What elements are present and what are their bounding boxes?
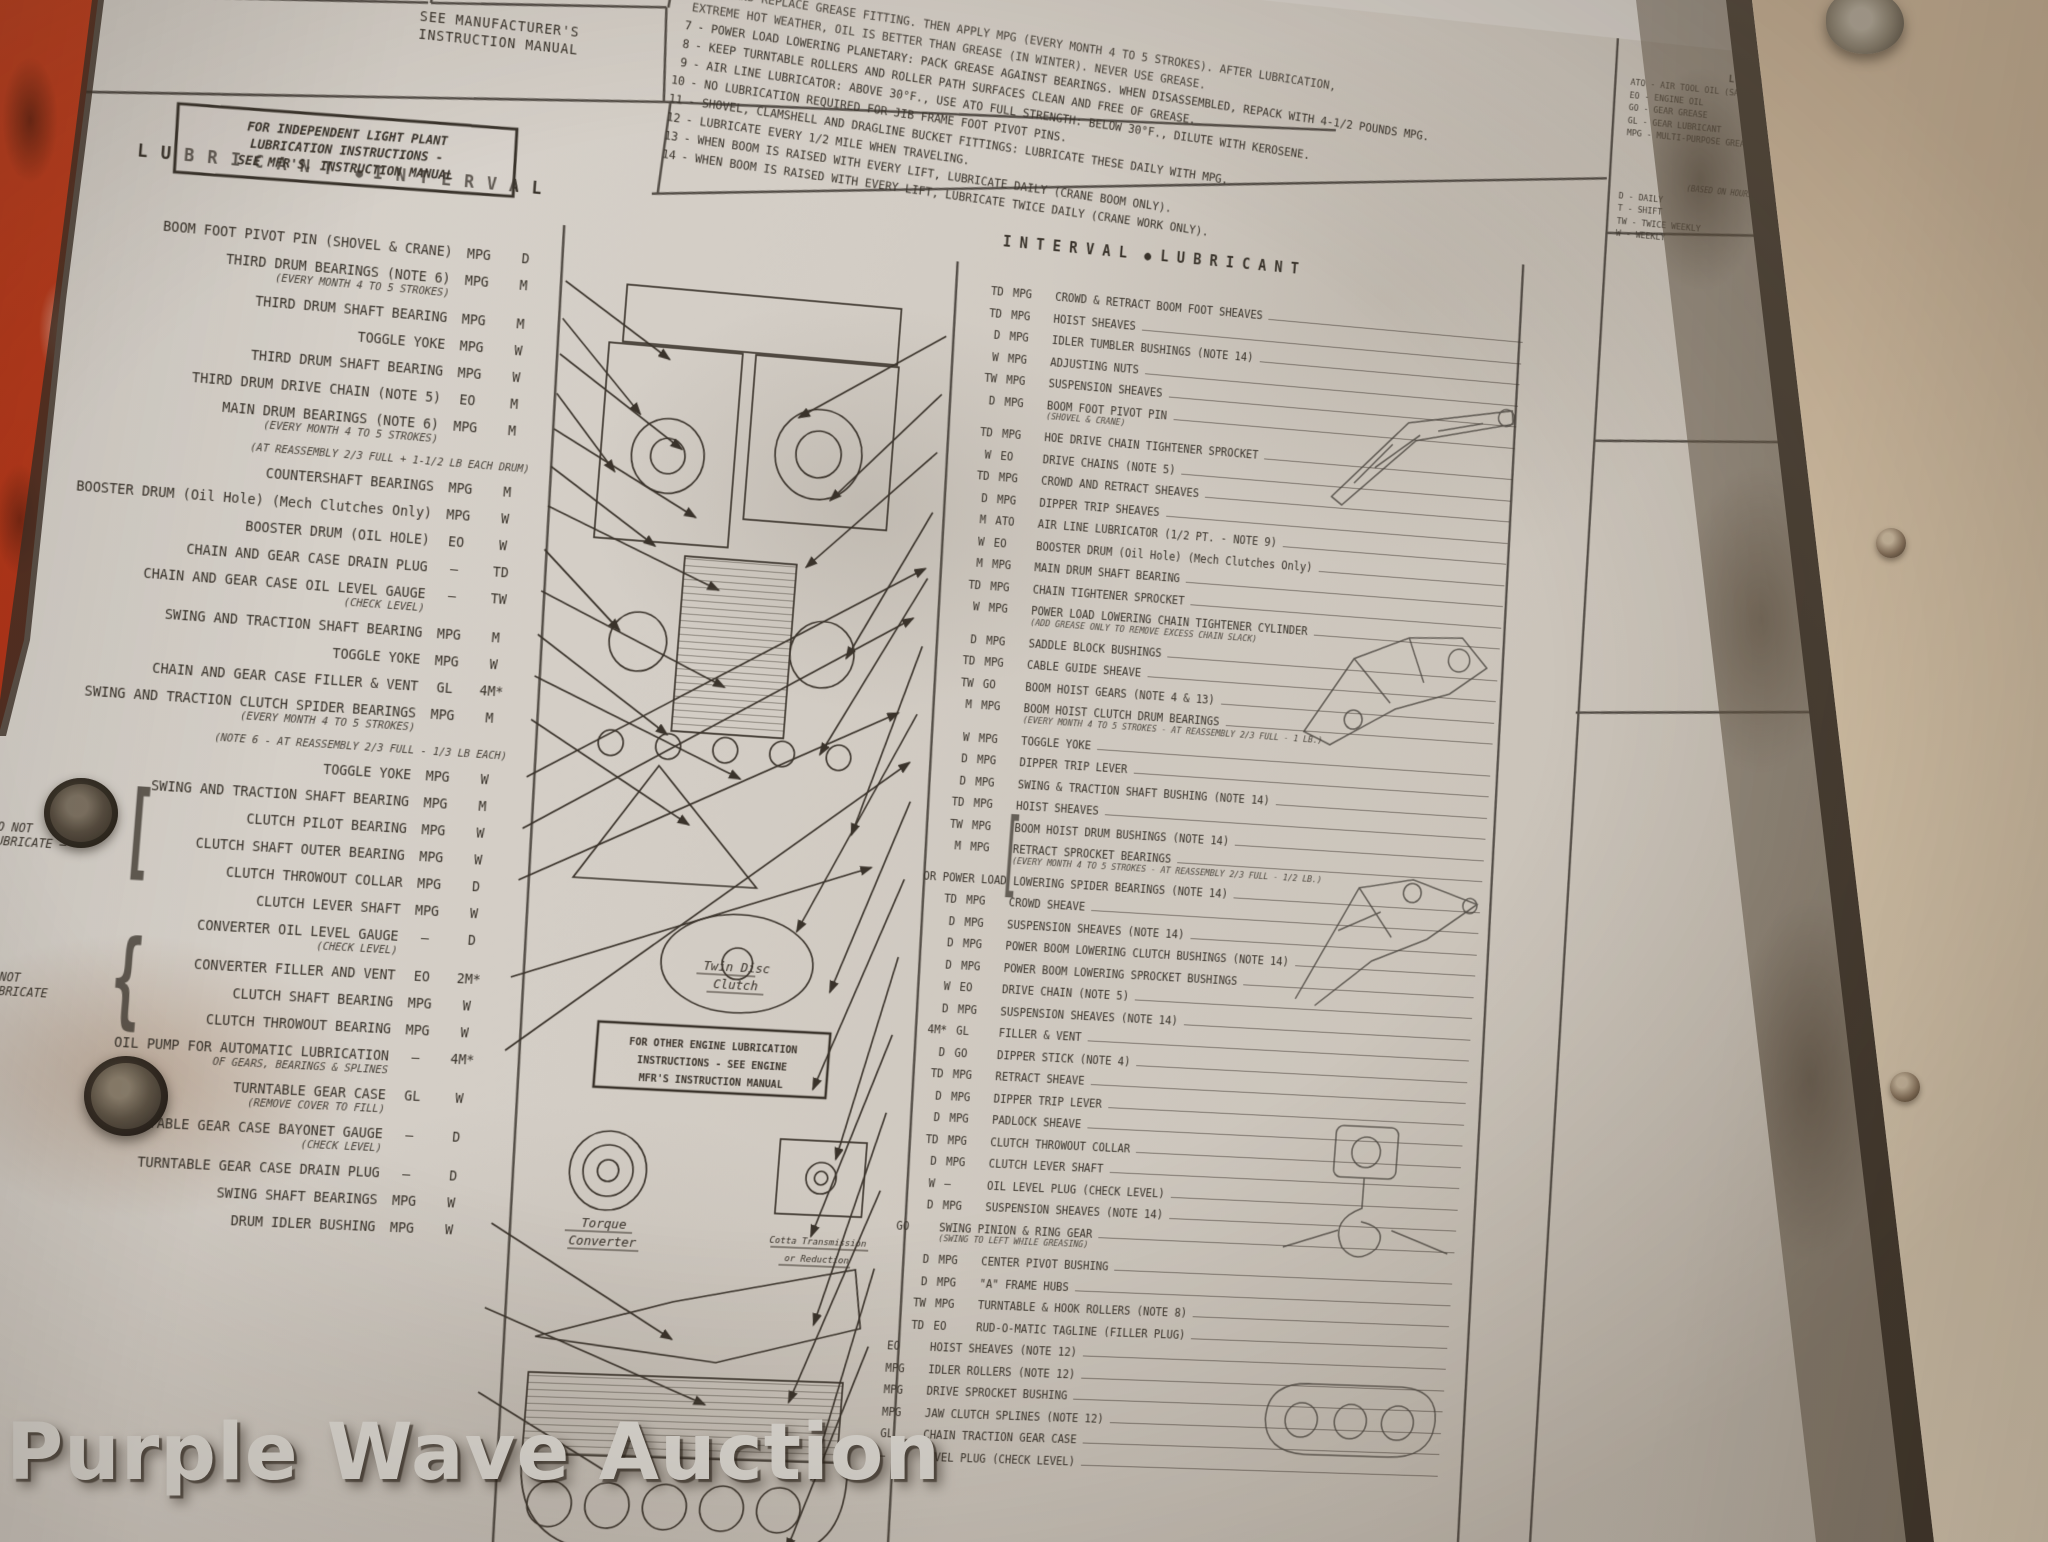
point-name: CONVERTER FILLER AND VENT [193, 957, 396, 984]
point-name: CLUTCH SHAFT OUTER BEARING [195, 835, 406, 864]
interval-code: W [457, 851, 499, 869]
point-name: DIPPER STICK (NOTE 4) [997, 1049, 1131, 1069]
lubricant-code: MPG [400, 902, 454, 921]
interval-code: TD [888, 1317, 934, 1332]
point-name: SUSPENSION SHEAVES (NOTE 14) [1007, 918, 1185, 941]
interval-code: W [963, 347, 1008, 364]
interval-code: M [950, 510, 995, 527]
interval-code: TD [945, 576, 990, 593]
interval-code: TW [961, 369, 1006, 386]
interval-code: D [893, 1251, 939, 1266]
interval-code: TD [966, 304, 1011, 321]
metal-bracket-icon [1826, 0, 1904, 54]
point-name: SWING SHAFT BEARINGS [216, 1185, 378, 1208]
wall-bolt-icon [1876, 528, 1906, 558]
interval-code: TD [957, 423, 1002, 440]
point-name: DRIVE SPROCKET BUSHING [926, 1385, 1068, 1403]
point-name: JAW CLUTCH SPLINES (NOTE 12) [924, 1407, 1104, 1426]
point-name: MAIN DRUM SHAFT BEARING [1034, 561, 1180, 585]
point-name: CLUTCH THROWOUT COLLAR [225, 865, 403, 891]
point-name: TOGGLE YOKE [332, 646, 421, 668]
leader-line [1171, 1196, 1458, 1210]
lubricant-code: MPG [988, 601, 1031, 618]
lubricant-code: MPG [443, 364, 497, 384]
do-not-overlubricate-label [0, 1194, 83, 1217]
lubricant-code: EO [440, 391, 494, 411]
point-name: CLUTCH THROWOUT COLLAR [990, 1136, 1131, 1156]
interval-code: W [459, 824, 501, 842]
interval-code: D [505, 250, 547, 269]
lubricant-code: MPG [962, 936, 1006, 952]
interval-code: M [475, 629, 517, 648]
photo-of-lubrication-chart: LIGHT PLANT EO SAE 40 HD SEE MANUFACTURE… [0, 0, 2048, 1542]
lubricant-code: GL [418, 679, 472, 699]
lubricant-code: EO [933, 1318, 977, 1333]
interval-code: TD [954, 467, 999, 484]
point-name: SUSPENSION SHEAVES (NOTE 14) [985, 1201, 1164, 1222]
do-not-overlubricate-label [0, 1099, 91, 1123]
interval-code: W [445, 997, 487, 1015]
interval-code: M [461, 798, 503, 816]
interval-code: W [484, 510, 526, 529]
interval-code: W [914, 978, 960, 994]
point-name: DIPPER TRIP LEVER [1019, 756, 1128, 776]
interval-code: 4M* [441, 1051, 483, 1069]
do-not-overlubricate-label [0, 196, 163, 229]
torque-converter-label: Torque [581, 1216, 627, 1233]
lubricant-code: MPG [445, 337, 499, 357]
interval-code: D [919, 912, 965, 928]
torque-converter-label2: Converter [568, 1233, 637, 1251]
lubricant-code: — [379, 1165, 433, 1183]
interval-code: TD [903, 1131, 949, 1147]
notes-list: AND REPLACE GREASE FITTING. THEN APPLY M… [643, 0, 1602, 318]
lubricant-code: MPG [390, 1022, 444, 1041]
lubricant-code: MPG [1002, 427, 1045, 444]
interval-code: TW [890, 1295, 936, 1310]
interval-code: W [430, 1195, 472, 1213]
do-not-overlubricate-label [0, 1167, 85, 1190]
interval-code: D [930, 771, 976, 787]
lubricant-code: MPG [393, 995, 447, 1014]
interval-code: W [899, 1174, 945, 1190]
interval-code: W [944, 597, 990, 614]
point-name: HOIST SHEAVES [1053, 312, 1136, 332]
wall-bolt-icon [1890, 1072, 1920, 1102]
point-name: "A" FRAME HUBS [979, 1277, 1069, 1294]
interval-code: D [904, 1109, 950, 1125]
leader-line [1193, 1316, 1449, 1327]
lubricant-code: GO [982, 677, 1025, 694]
interval-code: W [463, 771, 505, 789]
point-name: TOGGLE YOKE [1021, 735, 1092, 753]
point-name: SADDLE BLOCK BUSHINGS [1028, 637, 1162, 660]
point-name: HOIST SHEAVES (NOTE 12) [929, 1341, 1077, 1359]
lubricant-code: EO [1000, 449, 1043, 466]
lubricant-code: MPG [883, 1382, 927, 1397]
interval-code: TD [940, 652, 986, 669]
point-name: SWING AND TRACTION SHAFT BEARING [150, 778, 409, 810]
leader-line [1083, 1443, 1440, 1455]
lubricant-code: GO [896, 1218, 940, 1233]
lubricant-code: GL [956, 1024, 1000, 1040]
point-name: CABLE GUIDE SHEAVE [1026, 659, 1141, 680]
lubricant-code: EO [993, 535, 1036, 552]
lubricant-code: MPG [447, 310, 501, 330]
lubricant-code: — [388, 1049, 442, 1068]
interval-code: M [947, 554, 992, 571]
lubricant-code: MPG [942, 1198, 986, 1213]
point-name: RETRACT SHEAVE [995, 1070, 1085, 1088]
interval-code: TW [938, 673, 984, 690]
lubricant-code: MPG [415, 706, 469, 725]
lubricant-code: MPG [450, 272, 504, 293]
lubricant-code: — [382, 1126, 436, 1144]
lubricant-code: MPG [966, 893, 1010, 909]
lubricant-code: MPG [404, 848, 458, 867]
point-name: FILLER & VENT [998, 1027, 1082, 1044]
lubricant-code: MPG [946, 1155, 990, 1171]
lubricant-code: MPG [992, 557, 1035, 574]
lubricant-code: MPG [952, 1067, 996, 1083]
interval-code: TD [480, 563, 522, 582]
lubricant-code: MPG [961, 958, 1005, 974]
lubricant-code: MPG [408, 794, 462, 813]
interval-code: W [428, 1221, 470, 1239]
point-name: LEVEL PLUG (CHECK LEVEL) [921, 1450, 1075, 1468]
interval-code: D [932, 749, 978, 766]
lubricant-code: MPG [947, 1133, 991, 1149]
lubricant-code: — [425, 586, 479, 606]
twin-disc-clutch-label2: Clutch [713, 977, 759, 994]
do-not-overlubricate-label [0, 936, 104, 961]
interval-code: W [438, 1090, 480, 1108]
interval-code: D [909, 1043, 955, 1059]
point-name: CROWD SHEAVE [1008, 896, 1085, 914]
point-name: CHAIN TIGHTENER SPROCKET [1032, 583, 1185, 607]
point-name: CLUTCH THROWOUT BEARING [205, 1012, 391, 1038]
interval-code: M [491, 422, 533, 441]
lubricant-code: EO [959, 980, 1003, 996]
lubrication-chart-plate: LIGHT PLANT EO SAE 40 HD SEE MANUFACTURE… [0, 0, 2048, 1542]
mounting-bolt-icon [84, 1056, 168, 1136]
interval-code: W [949, 532, 994, 549]
lubricant-code: — [427, 560, 481, 580]
interval-code: TD [921, 890, 967, 906]
interval-code: D [898, 1196, 944, 1212]
point-name: TURNTABLE & HOOK ROLLERS (NOTE 8) [977, 1299, 1187, 1320]
leader-line [1191, 1338, 1447, 1349]
lubricant-code: MPG [949, 1111, 993, 1127]
point-name: DIPPER TRIP LEVER [993, 1092, 1102, 1110]
point-name: CHAIN TRACTION GEAR CASE [923, 1429, 1077, 1447]
point-name: CLUTCH PILOT BEARING [246, 811, 408, 837]
right-lubrication-list: TD MPG CROWD & RETRACT BOOM FOOT SHEAVES… [877, 282, 1525, 1487]
lubricant-code: EO [395, 968, 449, 987]
lubricant-code: MPG [431, 506, 485, 526]
bracket-glyph: [ [995, 797, 1027, 907]
leader-line [1115, 1270, 1453, 1285]
lubricant-code: — [398, 929, 452, 948]
lubricant-code: MPG [1007, 351, 1050, 368]
lubricant-code: MPG [935, 1296, 979, 1311]
point-name: COUNTERSHAFT BEARINGS [265, 466, 434, 495]
lubricant-code: MPG [885, 1360, 929, 1375]
point-name: TOGGLE YOKE [357, 330, 446, 353]
lubricant-code: MPG [452, 245, 506, 266]
interval-code: W [934, 728, 980, 745]
point-name: DRUM IDLER BUSHING [230, 1213, 376, 1235]
lubricant-code: MPG [420, 652, 474, 672]
lubricant-code: EO [887, 1339, 931, 1354]
lubricant-code: ATO [995, 514, 1038, 531]
lubricant-code: — [944, 1176, 988, 1192]
point-name: CLUTCH SHAFT BEARING [232, 986, 394, 1011]
lubricant-code: MPG [1011, 308, 1054, 325]
lubricant-code: EO [429, 533, 483, 553]
leader-line [1243, 984, 1473, 998]
interval-code: W [495, 368, 537, 387]
point-name: PADLOCK SHEAVE [991, 1114, 1081, 1131]
interval-code: W [482, 537, 524, 556]
interval-code: D [960, 391, 1005, 408]
left-lubrication-list: BOOM FOOT PIVOT PIN (SHOVEL & CRANE) MPG… [0, 202, 546, 1250]
interval-code: M [486, 483, 528, 502]
lubricant-code: MPG [402, 875, 456, 894]
lubricant-code: MPG [990, 579, 1033, 596]
do-not-overlubricate-label [0, 897, 107, 923]
leader-line [1276, 804, 1487, 819]
interval-code: W [453, 905, 495, 923]
interval-code: D [965, 325, 1010, 342]
lubricant-code: MPG [964, 915, 1008, 931]
interval-code: M [468, 709, 510, 728]
cotta-transmission-label2: or Reduction [784, 1253, 850, 1266]
lubricant-code: MPG [1012, 286, 1055, 303]
interval-code: M [493, 395, 535, 414]
interval-code: D [918, 934, 964, 950]
lubricant-code: MPG [938, 1253, 982, 1268]
interval-code: M [499, 315, 541, 334]
interval-code: D [451, 932, 493, 950]
interval-code: D [941, 630, 987, 647]
engine-notice-line1: FOR OTHER ENGINE LUBRICATION [629, 1036, 798, 1056]
point-name: DRIVE CHAIN (NOTE 5) [1002, 983, 1130, 1003]
lubricant-code: GO [954, 1046, 998, 1062]
point-name: DRIVE CHAINS (NOTE 5) [1042, 453, 1176, 477]
interval-code: M [936, 695, 982, 712]
lubricant-code: MPG [1009, 329, 1052, 346]
lubricant-code: MPG [1006, 373, 1049, 390]
point-name: BOOSTER DRUM (OIL HOLE) [245, 519, 431, 549]
point-name: OIL LEVEL PLUG (CHECK LEVEL) [986, 1179, 1165, 1200]
interval-code: W [443, 1024, 485, 1042]
leader-line [1110, 1422, 1441, 1434]
point-name: RUD-O-MATIC TAGLINE (FILLER PLUG) [976, 1321, 1186, 1342]
interval-code: TW [478, 590, 520, 609]
interval-code: W [497, 342, 539, 361]
interval-code: W [472, 656, 514, 675]
leader-line [1169, 1218, 1456, 1232]
interval-code: D [455, 878, 497, 896]
point-name: ADJUSTING NUTS [1050, 356, 1140, 377]
leader-line [1073, 1399, 1442, 1413]
do-not-overlubricate-label [0, 1059, 94, 1083]
point-name: CENTER PIVOT BUSHING [981, 1255, 1109, 1273]
auction-watermark: Purple Wave Auction [6, 1408, 941, 1498]
point-name: THIRD DRUM SHAFT BEARING [255, 293, 448, 326]
point-name: DIPPER TRIP SHEAVES [1039, 496, 1160, 519]
lubricant-code: MPG [951, 1089, 995, 1105]
point-name: CLUTCH LEVER SHAFT [255, 894, 401, 918]
interval-code: TD [968, 282, 1013, 300]
interval-code: D [906, 1087, 952, 1103]
lubricant-code: MPG [433, 479, 487, 499]
cotta-transmission-label: Cotta Transmission [769, 1235, 867, 1250]
lubricant-code: MPG [422, 625, 476, 645]
lubricant-code: MPG [977, 752, 1021, 768]
lubricant-code: MPG [957, 1002, 1001, 1018]
engine-notice-line3: MFR'S INSTRUCTION MANUAL [638, 1072, 783, 1091]
leader-line [1083, 1355, 1446, 1369]
interval-code: 4M* [470, 683, 512, 702]
point-name: IDLER ROLLERS (NOTE 12) [928, 1363, 1076, 1381]
point-name: CLUTCH LEVER SHAFT [988, 1158, 1104, 1176]
interval-code: D [952, 488, 997, 505]
leader-line [1081, 1464, 1438, 1476]
interval-code: D [435, 1129, 477, 1147]
point-name: THIRD DRUM SHAFT BEARING [250, 348, 444, 380]
point-name: TURNTABLE GEAR CASE DRAIN PLUG [137, 1154, 381, 1181]
interval-code: D [901, 1153, 947, 1169]
do-not-overlubricate-label [0, 869, 109, 895]
lubricant-code: MPG [406, 821, 460, 840]
lubricant-code: MPG [377, 1192, 431, 1210]
twin-disc-clutch-label: Twin Disc [703, 959, 771, 977]
interval-code: TD [929, 793, 975, 809]
mounting-bolt-icon [44, 778, 118, 848]
lubricant-code: MPG [411, 767, 465, 786]
engine-notice-line2: INSTRUCTIONS - SEE ENGINE [637, 1054, 788, 1073]
lubricant-code: MPG [997, 492, 1040, 509]
point-name: SUSPENSION SHEAVES (NOTE 14) [1000, 1005, 1178, 1028]
interval-code: TD [908, 1065, 954, 1081]
interval-code: M [502, 276, 544, 295]
interval-code: TW [927, 815, 973, 831]
leader-line [1295, 965, 1476, 976]
point-name: HOIST SHEAVES [1016, 800, 1100, 818]
lubricant-code: MPG [986, 633, 1029, 650]
lubricant-code: GL [385, 1087, 439, 1106]
interval-code: 4M* [911, 1021, 957, 1037]
lubricant-code: MPG [998, 470, 1041, 487]
lubricant-code: MPG [438, 417, 492, 437]
do-not-overlubricate-label [0, 1019, 97, 1044]
leader-line [1081, 1377, 1444, 1391]
interval-code: D [913, 999, 959, 1015]
interval-code: D [916, 956, 962, 972]
interval-code: W [956, 445, 1001, 462]
legend: LUBRICANT SYMBOLS ATO - AIR TOOL OIL (SA… [1607, 55, 1961, 271]
lubricant-code: MPG [975, 774, 1019, 790]
see-manufacturer-cell: SEE MANUFACTURER'S INSTRUCTION MANUAL [371, 3, 626, 64]
interval-code: D [432, 1168, 474, 1186]
lubricant-code: MPG [375, 1219, 429, 1237]
interval-code: M [925, 837, 971, 853]
lubricant-code: MPG [978, 731, 1022, 747]
interval-code: 2M* [448, 971, 490, 989]
point-name: SUSPENSION SHEAVES [1048, 377, 1163, 400]
lubricant-code: MPG [1004, 395, 1047, 412]
light-plant-notice-box: FOR INDEPENDENT LIGHT PLANT LUBRICATION … [173, 102, 519, 198]
lubricant-code: MPG [981, 698, 1024, 714]
point-name: TOGGLE YOKE [323, 762, 412, 784]
header-dot: ● [1135, 248, 1161, 265]
lubricant-code: MPG [984, 655, 1027, 672]
lubricant-code: MPG [936, 1275, 980, 1290]
do-not-overlubricate-label [0, 1139, 88, 1162]
interval-code: D [892, 1273, 938, 1288]
